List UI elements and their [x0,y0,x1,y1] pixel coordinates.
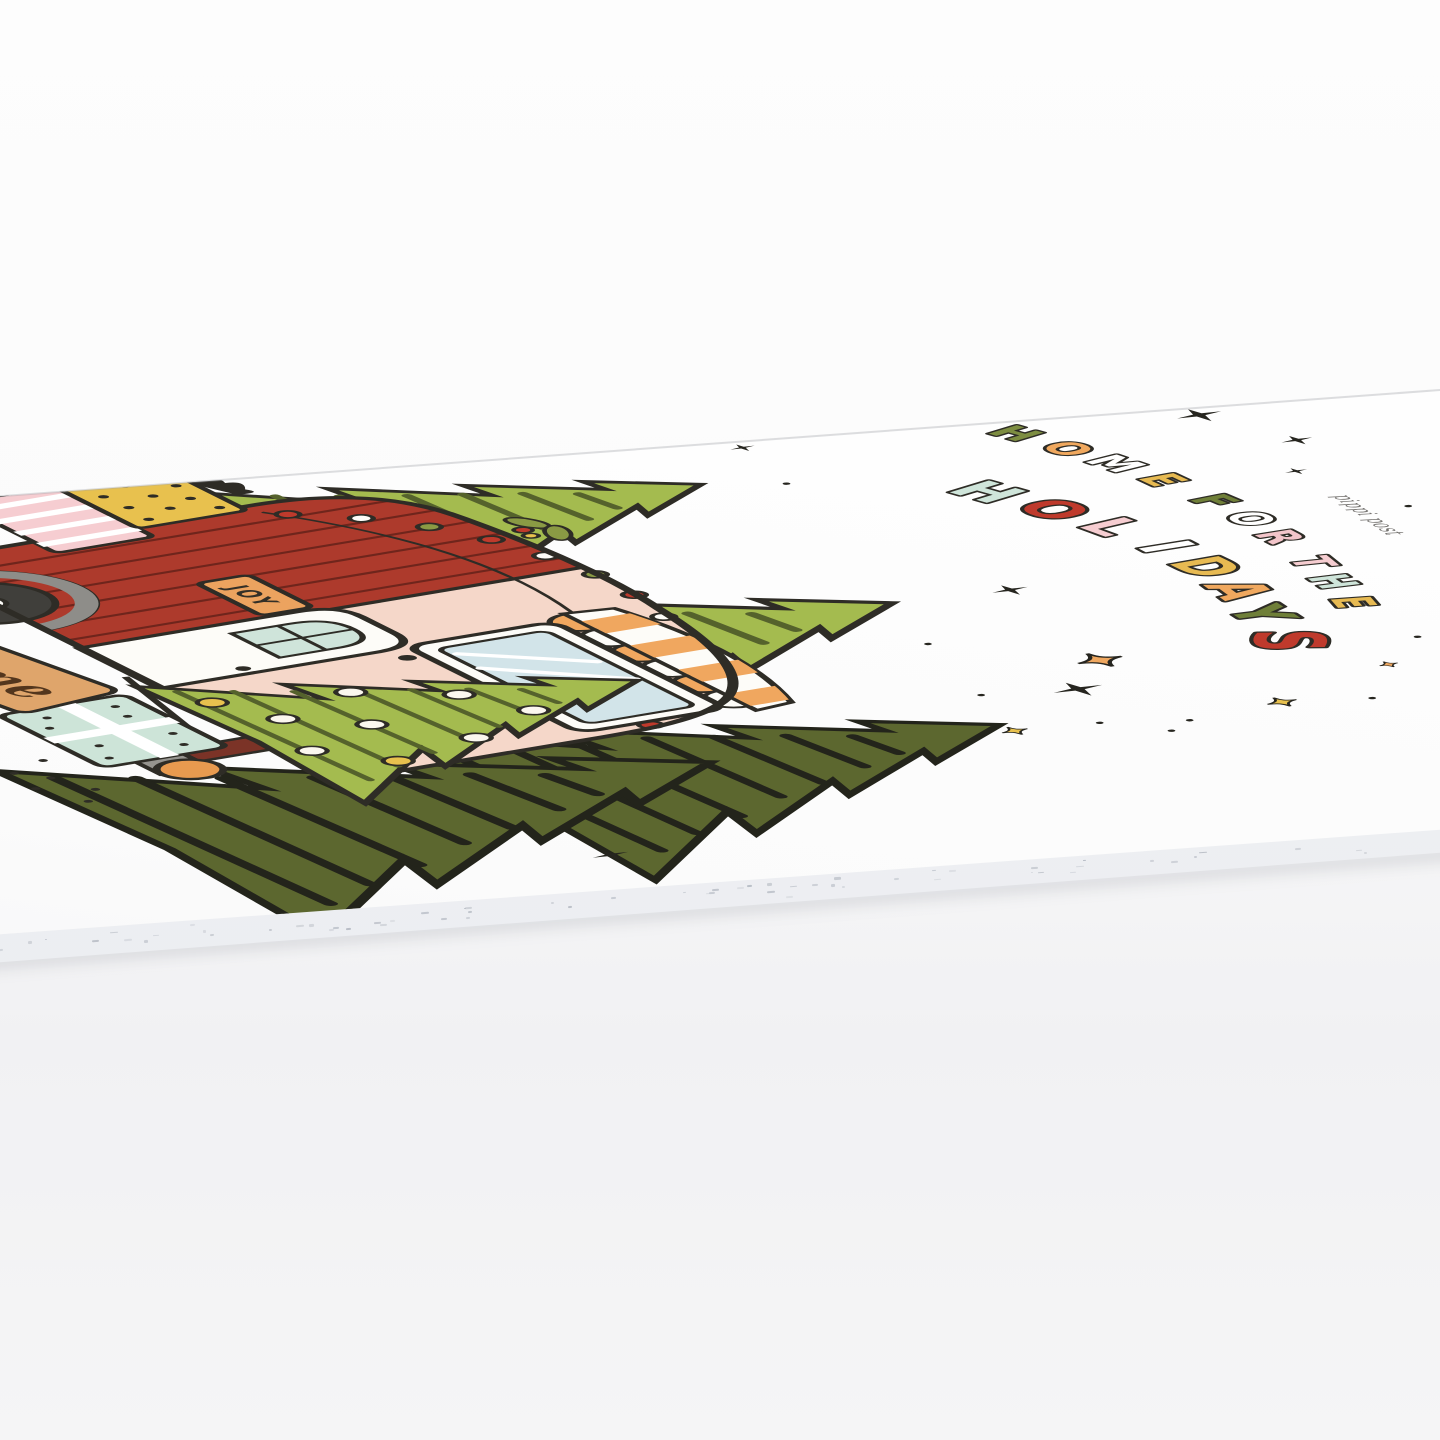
page-speckle [767,883,772,886]
page-speckle [767,891,775,893]
title-letter: E [1125,470,1201,489]
page-speckle [551,902,554,904]
title-letter: F [1176,491,1251,511]
page-speckle [329,929,334,931]
page-speckle [441,918,447,920]
dot [1412,635,1423,638]
title-letter: D [1150,552,1261,582]
title-letter: Y [1207,600,1314,626]
page-speckle [421,912,429,915]
sparkle-icon [983,582,1037,597]
page-speckle [1076,866,1084,868]
title-letter: O [997,494,1110,525]
page-speckle [124,939,132,941]
title-letter: E [1316,595,1389,610]
page-speckle [842,886,845,888]
sparkle-icon [1041,679,1115,700]
page-speckle [45,939,47,940]
diamond-star-icon [1066,650,1134,670]
dot [1166,729,1177,732]
page-speckle [1295,848,1301,850]
page-speckle [834,877,841,880]
page-speckle [932,870,936,872]
page-speckle [190,924,195,926]
dot [1184,719,1195,722]
snow-dot [30,464,43,468]
page-speckle [1194,856,1197,858]
page-speckle [0,949,3,951]
diamond-star-icon [1375,660,1403,668]
title-letter: A [1185,577,1292,603]
sparkle-icon [1274,433,1321,446]
page-speckle [380,924,387,927]
page-speckle [144,940,148,943]
page-speckle [92,940,99,943]
page-speckle [709,892,715,894]
dot [976,694,987,697]
page-speckle [333,927,339,929]
page-speckle [747,885,752,887]
title-letter: I [1119,537,1212,557]
dot [923,642,934,645]
page-speckle [737,887,744,889]
dot [1094,721,1105,724]
page-speckle [934,879,941,881]
brand-script: pippi post [1326,493,1411,536]
title-letter: H [1293,572,1371,592]
page-speckle [346,928,351,930]
title-letter: M [1072,451,1158,476]
page-speckle [110,932,118,934]
title-letter: O [1210,509,1290,530]
title-letter: H [976,422,1055,445]
page-speckle [712,889,719,891]
page-speckle [1150,860,1154,862]
title-letter: O [1027,438,1108,461]
title-letter: T [1275,554,1349,571]
page-speckle [296,925,304,928]
title-letter: S [1230,630,1347,651]
page-speckle [894,878,899,880]
page-speckle [1199,852,1207,854]
sparkle-icon [724,443,761,454]
page-speckle [468,911,472,913]
sparkle-icon [1279,466,1313,476]
page-speckle [28,941,32,944]
dot [1403,505,1414,508]
page-speckle [1171,861,1178,863]
page-speckle [568,906,572,908]
page-speckle [790,886,797,888]
page-speckle [390,920,395,923]
page-speckle [1364,852,1367,854]
page-speckle [269,929,272,931]
snow-dot [48,450,61,454]
snow-dot [37,759,50,763]
page-speckle [153,935,159,937]
page-speckle [203,930,206,933]
notepad-cover: JOY [0,0,1440,1440]
product-photo-stage: JOY [0,0,1440,1440]
title-letter: R [1240,527,1318,547]
page-speckle [1070,872,1076,874]
page-speckle [786,896,793,898]
title-letter: L [1061,513,1163,541]
page-speckle [1031,872,1033,873]
page-speckle [466,917,470,919]
diamond-star-icon [1259,695,1304,708]
page-speckle [683,892,686,893]
page-speckle [1083,860,1086,862]
page-speckle [611,897,616,899]
page-speckle [949,870,956,872]
page-speckle [1356,850,1362,852]
page-speckle [1038,872,1044,874]
page-speckle [210,934,214,936]
page-speckle [309,924,314,927]
dot [1367,697,1378,700]
page-speckle [812,884,818,886]
page-speckle [831,884,835,887]
dot [781,482,792,485]
diamond-star-icon [1043,354,1069,361]
page-speckle [1031,867,1038,870]
